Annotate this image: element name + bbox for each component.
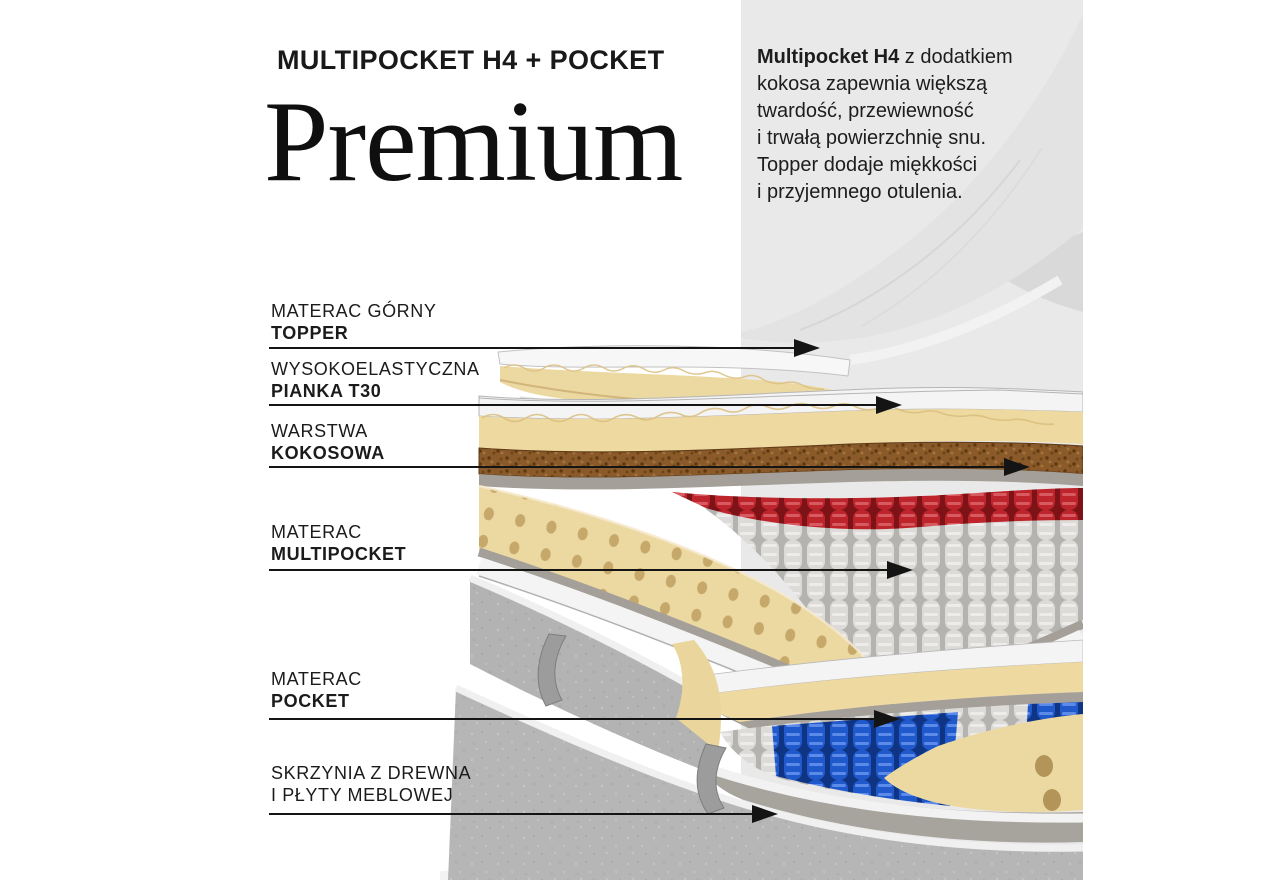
- description-body: z dodatkiem kokosa zapewnia większą twar…: [757, 46, 1013, 203]
- layer-label-pianka-t30: WYSOKOELASTYCZNA PIANKA T30: [271, 358, 480, 402]
- mattress-infographic: MULTIPOCKET H4 + POCKET Premium Multipoc…: [0, 0, 1280, 880]
- layer-label-pocket: MATERAC POCKET: [271, 668, 362, 712]
- layer-label-topper: MATERAC GÓRNY TOPPER: [271, 300, 436, 344]
- product-description: Multipocket H4 z dodatkiem kokosa zapewn…: [757, 44, 1087, 206]
- product-subtitle: MULTIPOCKET H4 + POCKET: [277, 45, 664, 76]
- layer-label-kokosowa: WARSTWA KOKOSOWA: [271, 420, 385, 464]
- product-title: Premium: [264, 84, 682, 200]
- layer-label-skrzynia: SKRZYNIA Z DREWNA I PŁYTY MEBLOWEJ: [271, 762, 471, 806]
- description-lead: Multipocket H4: [757, 46, 899, 68]
- layer-label-multipocket: MATERAC MULTIPOCKET: [271, 521, 406, 565]
